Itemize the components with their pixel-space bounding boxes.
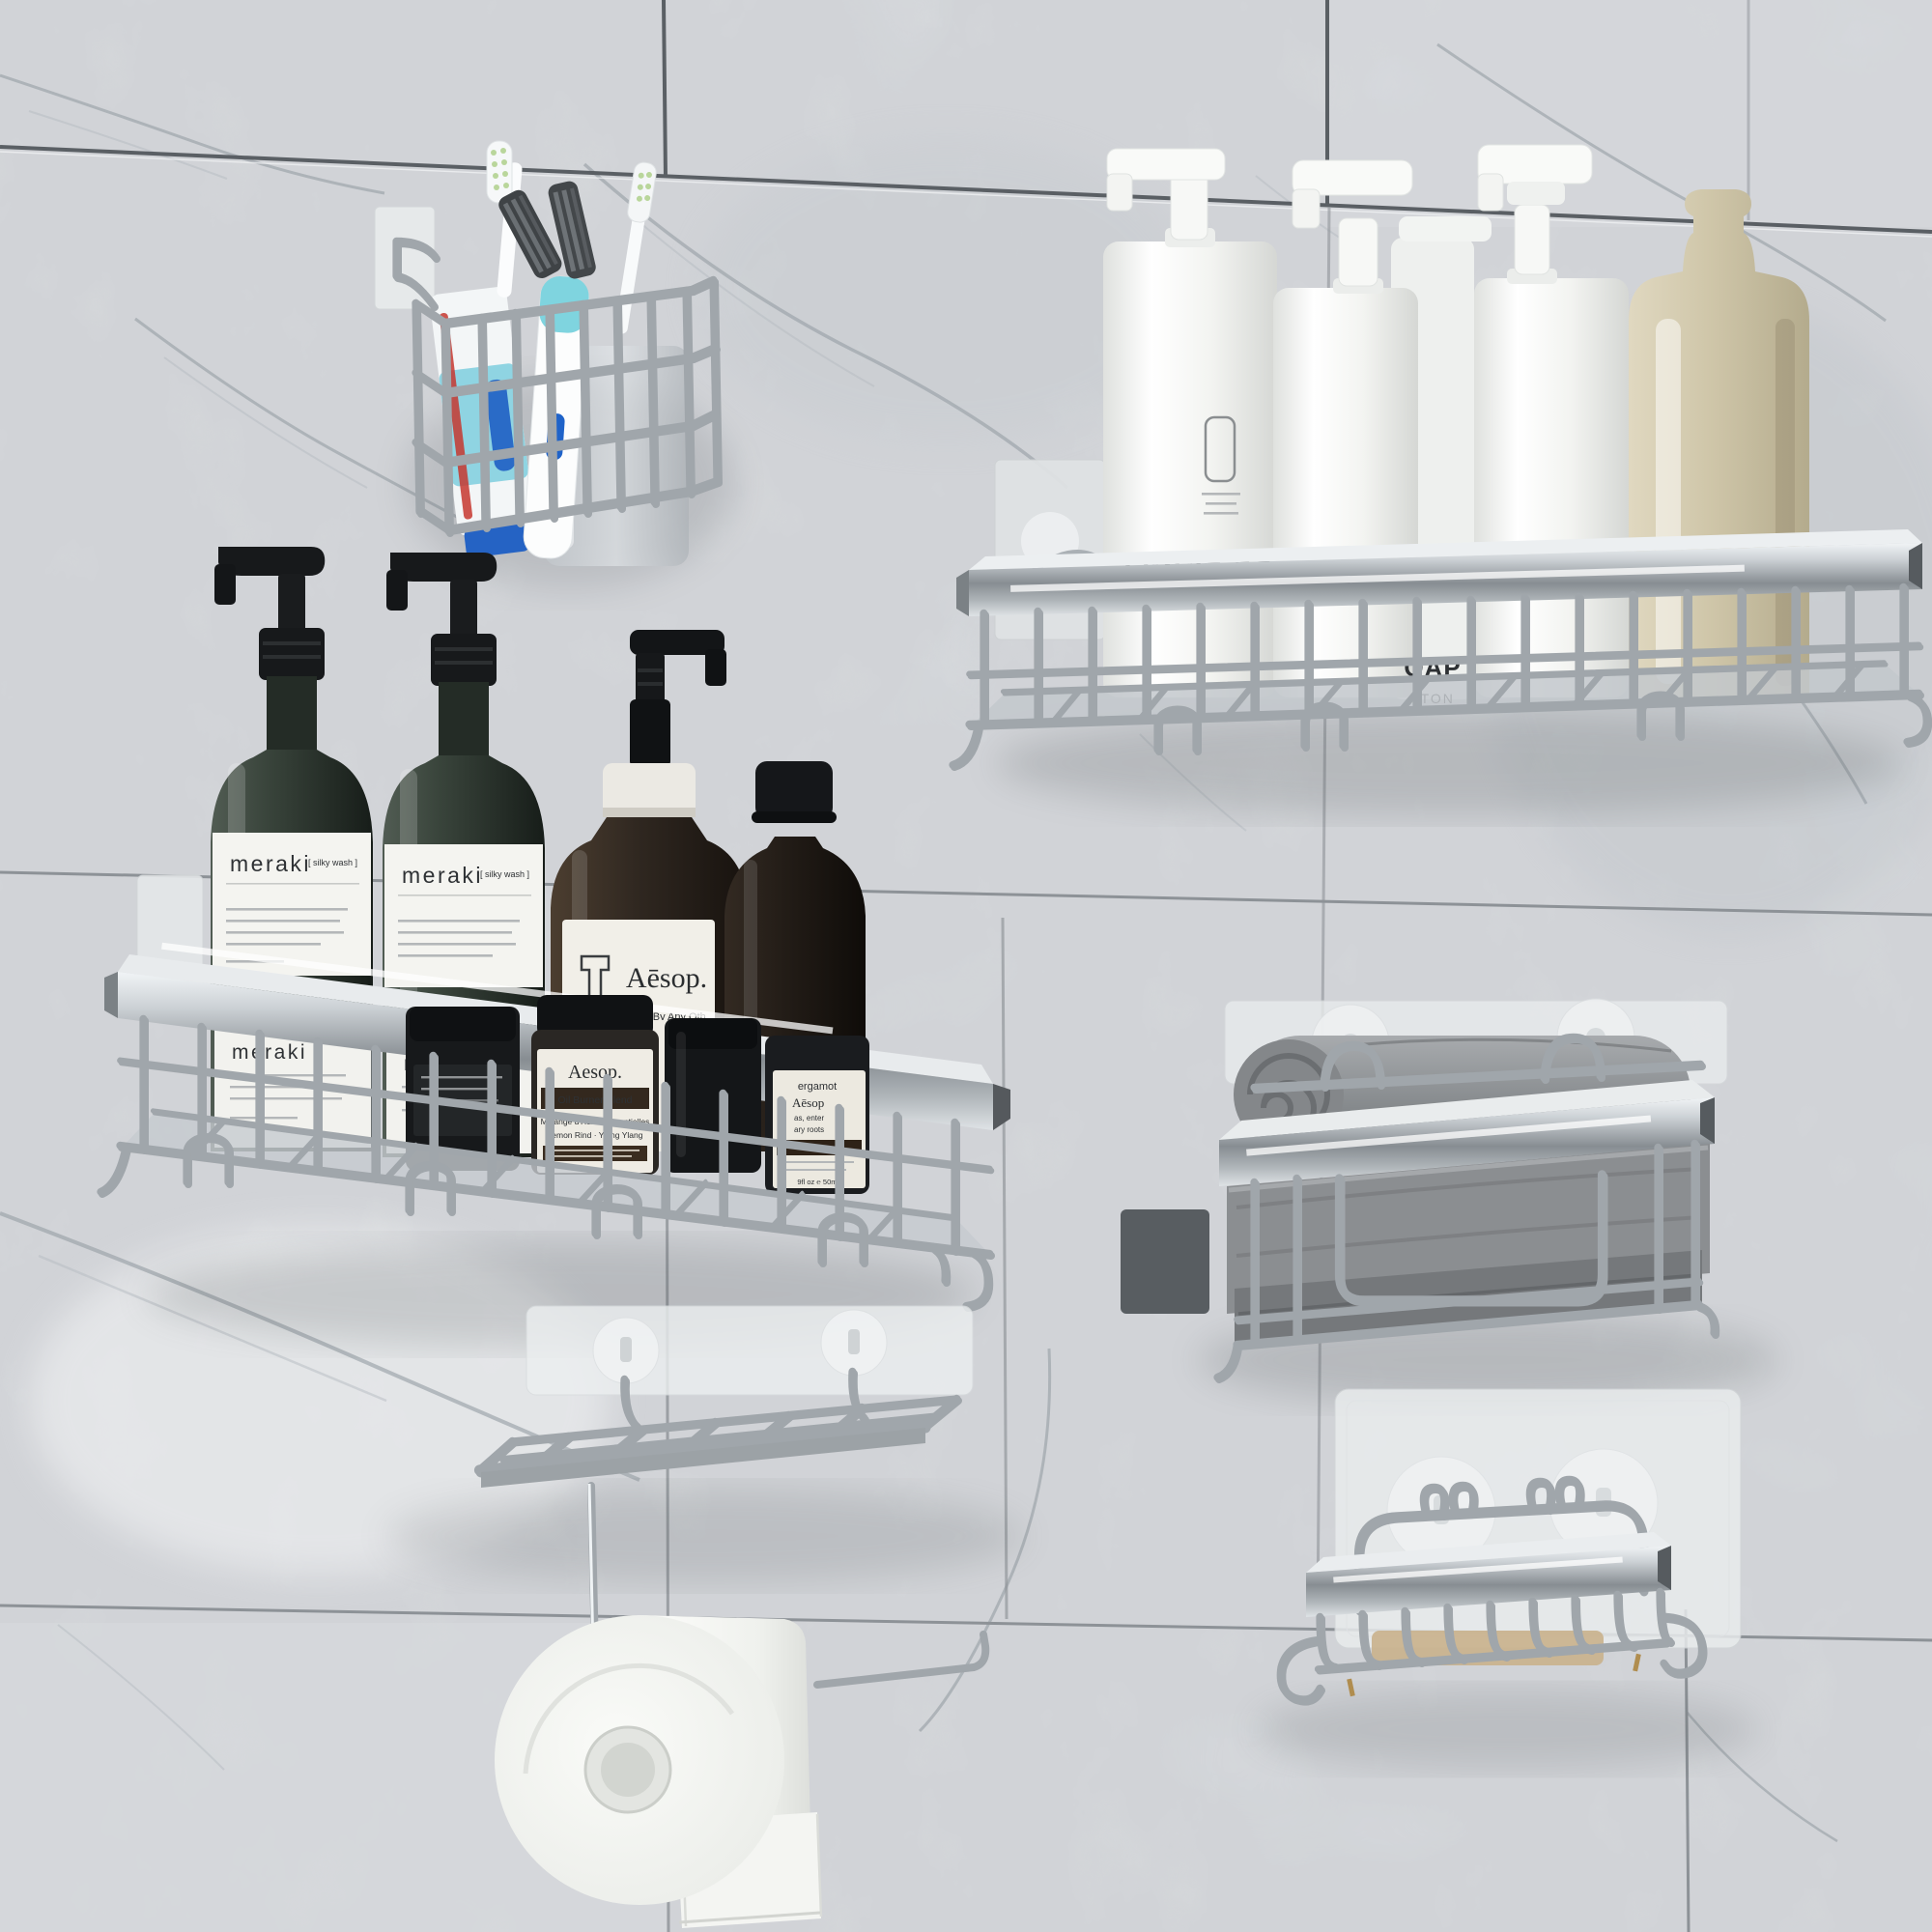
label-ergamot: ergamot: [798, 1081, 837, 1093]
suction-nub-right: [848, 1329, 860, 1354]
label-aesop: Aēsop.: [626, 962, 707, 994]
label-oil-burner: Oil Burner Blend: [557, 1094, 632, 1106]
brush-head: [487, 141, 512, 203]
scene-canvas: LIQUID SOA NORDIC COTTON OAP TTON: [0, 0, 1932, 1932]
pump-nozzle: [1107, 174, 1132, 211]
label-lemon-rind: Lemon Rind · Ylang Ylang: [548, 1130, 643, 1140]
tile-shade-topright: [1328, 0, 1932, 227]
label-meraki-2: meraki: [232, 1041, 307, 1064]
suction-nub-left: [620, 1337, 632, 1362]
black-jar-2: [665, 1018, 761, 1173]
wall-shadow: [386, 1488, 1024, 1584]
label-meraki-1: meraki: [230, 851, 311, 876]
towel-basket: [1198, 999, 1777, 1406]
wall-shadow: [995, 710, 1903, 816]
label-roots: ary roots: [794, 1125, 824, 1134]
bottle-highlight: [1656, 319, 1681, 684]
label-floz: 9fl oz ℮ 50mL: [797, 1178, 840, 1186]
label-silky-2: [ silky wash ]: [480, 869, 529, 879]
label-aesop-sm: Aēsop: [792, 1095, 824, 1110]
label-aesop-jar: Aesop.: [568, 1062, 622, 1083]
rail-end-cap-left: [956, 570, 969, 616]
label-enter: as, enter: [794, 1114, 824, 1122]
mount-plate-right: [1121, 1209, 1209, 1314]
label-silky-1: [ silky wash ]: [308, 858, 357, 867]
label-meraki-3: meraki: [402, 863, 483, 888]
roll-core-hole: [601, 1743, 655, 1797]
bathroom-organizer-product-photo: LIQUID SOA NORDIC COTTON OAP TTON: [0, 0, 1932, 1932]
grout-v1: [664, 0, 666, 178]
wall-shadow: [1256, 1689, 1758, 1770]
rail-end-cap-left: [104, 972, 118, 1018]
